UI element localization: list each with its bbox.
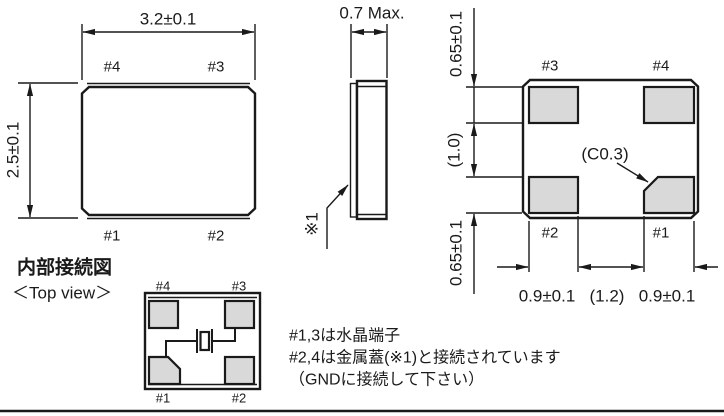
pad-height-bottom-label: 0.65±0.1: [447, 220, 466, 286]
internal-pad-label-2: #2: [232, 391, 246, 406]
pad-width-right-label: 0.9±0.1: [639, 287, 696, 306]
chamfer-leader-arrow: [617, 163, 648, 182]
pad-pitch-label: (1.2): [590, 287, 625, 306]
side-view-metal-lid: [351, 84, 357, 218]
internal-pad-2: [225, 357, 254, 384]
pad-gap-label: (1.0): [445, 133, 464, 168]
pad-label-1: #1: [104, 228, 121, 245]
pad-1-chamfered: [644, 177, 694, 213]
pad-3: [529, 87, 578, 123]
note-line-2: #2,4は金属蓋(※1)と接続されています: [289, 349, 561, 367]
internal-pad-4: [149, 301, 178, 328]
internal-diagram-title: 内部接続図: [17, 256, 112, 279]
pad-label-4: #4: [104, 59, 121, 76]
crystal-resonator-symbol: [201, 332, 210, 350]
package-drawing-page: 3.2±0.1 2.5±0.1 #4 #3 #1 #2 0.7 Max. ※1 …: [0, 0, 724, 416]
pad-2: [529, 177, 578, 213]
internal-pad-label-3: #3: [232, 279, 246, 294]
height-dimension-label: 2.5±0.1: [4, 122, 23, 179]
pad-label-3: #3: [208, 59, 225, 76]
top-view-package-outline: [82, 87, 255, 215]
pad-width-left-label: 0.9±0.1: [519, 287, 576, 306]
internal-pad-3: [225, 301, 254, 328]
notes-block: #1,3は水晶端子 #2,4は金属蓋(※1)と接続されています （GNDに接続し…: [289, 327, 561, 389]
pad-height-top-label: 0.65±0.1: [447, 11, 466, 77]
internal-pad-label-1: #1: [156, 391, 170, 406]
top-view: 3.2±0.1 2.5±0.1 #4 #3 #1 #2: [4, 10, 256, 245]
side-view-package-body: [357, 81, 387, 219]
pad-label-2: #2: [542, 225, 559, 242]
internal-pad-1-chamfered: [149, 357, 180, 384]
pad-label-3: #3: [542, 58, 559, 75]
pad-4: [644, 87, 694, 123]
internal-diagram-subtitle: ＜Top view＞: [12, 284, 112, 303]
pad-label-1: #1: [653, 225, 670, 242]
thickness-dimension-label: 0.7 Max.: [339, 4, 404, 23]
pad-label-4: #4: [653, 58, 670, 75]
internal-connection-diagram: 内部接続図 ＜Top view＞ #4 #3 #1 #2: [12, 256, 260, 406]
lid-ref-leader-arrow: [327, 185, 348, 249]
lid-ref-label: ※1: [303, 212, 322, 236]
pad-label-2: #2: [208, 228, 225, 245]
side-view: 0.7 Max. ※1: [303, 4, 405, 250]
dimension-drawing: 3.2±0.1 2.5±0.1 #4 #3 #1 #2 0.7 Max. ※1 …: [0, 0, 724, 416]
chamfer-dimension-label: (C0.3): [581, 145, 628, 164]
note-line-3: （GNDに接続して下さい）: [289, 371, 484, 389]
bottom-view: #3 #4 #2 #1 (C0.3) 0.65±0.1 (1.0) 0.65±0…: [445, 8, 719, 306]
width-dimension-label: 3.2±0.1: [140, 10, 197, 29]
note-line-1: #1,3は水晶端子: [289, 327, 400, 345]
internal-pad-label-4: #4: [156, 279, 170, 294]
